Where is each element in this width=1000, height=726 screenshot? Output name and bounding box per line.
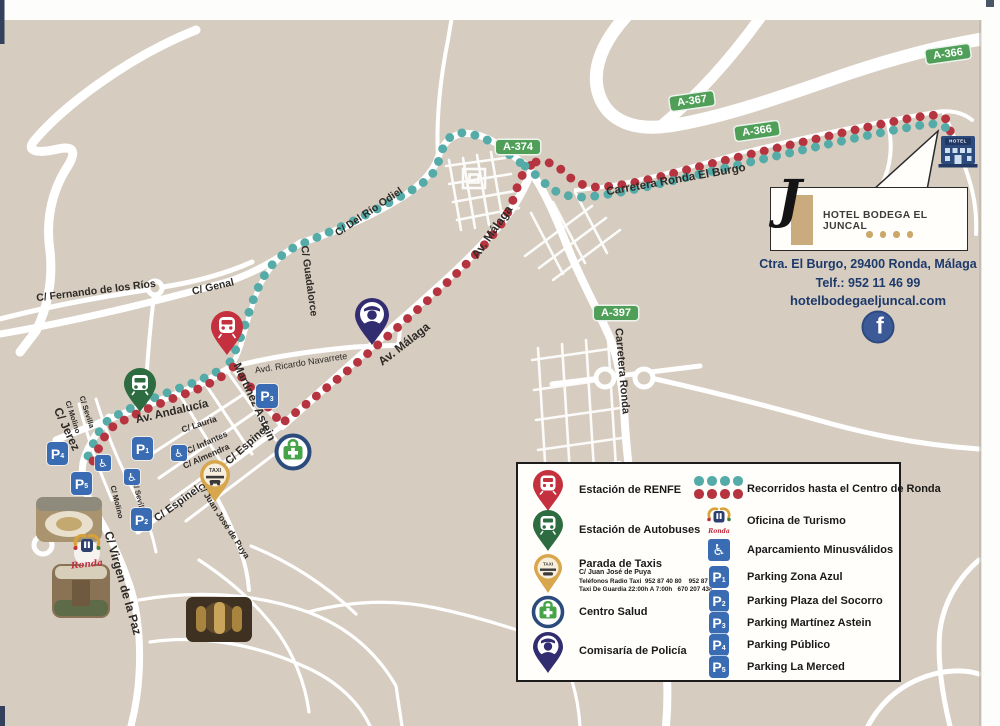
legend-label-turismo: Oficina de Turismo bbox=[747, 515, 846, 527]
map-parking-badge-p4: P4 bbox=[47, 442, 68, 465]
map-parking-badge-p1: P1 bbox=[132, 437, 153, 460]
star-dot bbox=[866, 231, 873, 238]
street-label-genal: C/ Genal bbox=[191, 276, 235, 297]
street-label-ricardo-navarrete: Avd. Ricardo Navarrete bbox=[254, 351, 348, 375]
legend-label-policia: Comisaría de Policía bbox=[579, 645, 687, 657]
hotel-phone: Telf.: 952 11 46 99 bbox=[738, 276, 998, 290]
legend-route-teal-dots bbox=[694, 476, 743, 486]
map-parking-badge-p5: P5 bbox=[71, 472, 92, 495]
street-label-carretera-burgo: Carretera Ronda El Burgo bbox=[605, 162, 746, 198]
road-badge-a367: A-367 bbox=[669, 91, 714, 111]
legend-p1-icon: P1 bbox=[709, 566, 729, 588]
street-label-juan-jose-puya: C/ Juan José de Puya bbox=[196, 482, 252, 561]
legend-renfe-icon bbox=[532, 470, 564, 512]
hotel-stars bbox=[866, 231, 913, 238]
legend-taxi-guard: Taxi De Guardia 22:00h A 7:00h 670 207 4… bbox=[579, 586, 712, 593]
legend-label-p5: Parking La Merced bbox=[747, 661, 845, 673]
legend-turismo-script: Ronda bbox=[707, 528, 730, 535]
legend-turismo-icon: Ronda bbox=[704, 506, 734, 536]
labels-layer: C/ Fernando de los Ríos C/ Genal C/ Guad… bbox=[0, 0, 1000, 726]
street-label-carretera-ronda: Carretera Ronda bbox=[612, 328, 631, 415]
street-label-lauria: C/ Lauria bbox=[180, 414, 218, 435]
street-label-av-malaga-upper: Av. Málaga bbox=[469, 203, 516, 261]
street-label-espinel-lower: C/ Espinel bbox=[152, 484, 202, 525]
hotel-website: hotelbodegaeljuncal.com bbox=[738, 293, 998, 308]
hotel-logo-letter: J bbox=[777, 174, 802, 226]
hotel-name: HOTEL BODEGA EL JUNCAL bbox=[823, 210, 967, 232]
map-wheelchair-icon-3: ♿ bbox=[171, 445, 187, 461]
legend-label-p4: Parking Público bbox=[747, 639, 830, 651]
street-label-rio-odiel: C/ Del Río Odiel bbox=[333, 185, 405, 239]
legend-label-p3: Parking Martínez Astein bbox=[747, 617, 871, 629]
star-dot bbox=[893, 231, 900, 238]
legend-route-red-dots bbox=[694, 489, 743, 499]
road-badge-a374: A-374 bbox=[496, 140, 540, 154]
map-wheelchair-icon-2: ♿ bbox=[124, 469, 140, 485]
facebook-letter: f bbox=[876, 313, 884, 340]
map-parking-badge-p3: P3 bbox=[256, 384, 278, 408]
legend-label-bus: Estación de Autobuses bbox=[579, 524, 700, 536]
road-badge-a366-mid: A-366 bbox=[734, 121, 779, 141]
road-badge-a366-top: A-366 bbox=[925, 44, 970, 64]
map-wheelchair-icon-1: ♿ bbox=[95, 455, 111, 471]
map-canvas: C/ Fernando de los Ríos C/ Genal C/ Guad… bbox=[0, 0, 1000, 726]
street-label-espinel-upper: C/ Espinel bbox=[223, 423, 271, 468]
legend-label-p1: Parking Zona Azul bbox=[747, 571, 843, 583]
legend-p2-icon: P2 bbox=[709, 590, 729, 612]
star-dot bbox=[907, 231, 914, 238]
legend-label-p2: Parking Plaza del Socorro bbox=[747, 595, 883, 607]
taxi-pin-label: TAXI bbox=[209, 468, 221, 474]
street-label-fernando: C/ Fernando de los Ríos bbox=[36, 278, 157, 305]
street-label-av-malaga-lower: Av. Málaga bbox=[376, 320, 433, 369]
hotel-icon-label: HOTEL bbox=[949, 139, 967, 144]
legend-label-renfe: Estación de RENFE bbox=[579, 484, 681, 496]
legend-wheelchair-icon: ♿ bbox=[708, 539, 730, 561]
legend-policia-icon bbox=[532, 632, 564, 674]
legend-salud-icon bbox=[531, 595, 565, 629]
legend-taxi-icon: TAXI bbox=[533, 554, 563, 594]
legend-taxi-phones: Teléfonos Radio Taxi 952 87 40 80 952 87… bbox=[579, 578, 725, 585]
hotel-address: Ctra. El Burgo, 29400 Ronda, Málaga bbox=[738, 257, 998, 271]
legend-p3-icon: P3 bbox=[709, 612, 729, 634]
legend-p5-icon: P5 bbox=[709, 656, 729, 678]
legend-p4-icon: P4 bbox=[709, 634, 729, 656]
road-badge-a397: A-397 bbox=[594, 306, 638, 320]
legend-taxi-street: C/ Juan José de Puya bbox=[579, 569, 651, 576]
legend-label-minusvalidos: Aparcamiento Minusválidos bbox=[747, 544, 893, 556]
legend-bus-icon bbox=[532, 510, 564, 552]
street-label-guadalorce: C/ Guadalorce bbox=[298, 245, 320, 317]
legend-label-routes: Recorridos hasta el Centro de Ronda bbox=[747, 483, 941, 495]
legend-box: TAXI Estación de RENFE Estación de Autob… bbox=[516, 462, 901, 682]
hotel-info-panel: J HOTEL BODEGA EL JUNCAL bbox=[770, 187, 968, 251]
street-label-virgen-paz: C/ Virgen de la Paz bbox=[102, 530, 145, 637]
street-label-sevilla-upper: C/ Sevilla bbox=[78, 395, 97, 430]
legend-taxi-text: TAXI bbox=[543, 562, 553, 567]
map-parking-badge-p2: P2 bbox=[131, 508, 152, 531]
street-label-molino-lower: C/ Molino bbox=[109, 485, 126, 520]
star-dot bbox=[880, 231, 887, 238]
legend-label-salud: Centro Salud bbox=[579, 606, 647, 618]
tourist-office-script: Ronda bbox=[70, 558, 103, 571]
